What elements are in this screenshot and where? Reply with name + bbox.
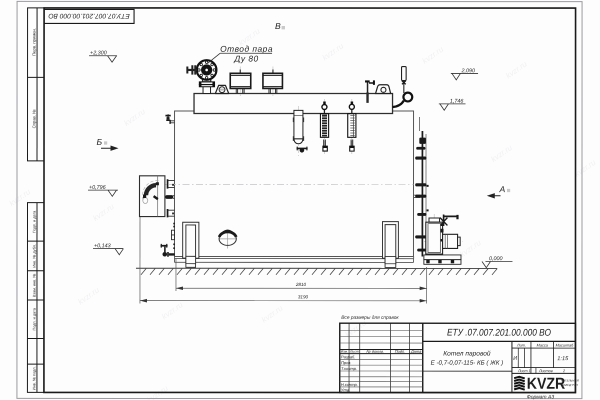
svg-text:3190: 3190 [298,294,309,299]
svg-text:2810: 2810 [295,282,307,287]
svg-text:А: А [499,184,506,194]
svg-text:Отвод пара: Отвод пара [220,44,273,54]
svg-text:В: В [275,21,281,31]
svg-text:Ду 80: Ду 80 [233,53,258,63]
svg-text:Б: Б [97,137,103,147]
